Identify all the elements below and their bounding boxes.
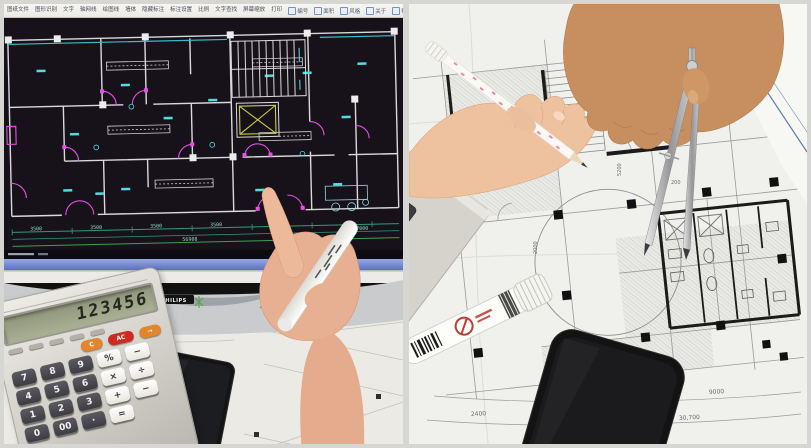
key-percent: % <box>96 348 123 368</box>
key-8: 8 <box>39 361 66 381</box>
key-plus: + <box>104 385 131 405</box>
dim-right-label: 7000 <box>356 226 368 232</box>
key-minus: − <box>124 342 151 362</box>
toolbar-item: 面积 <box>311 7 337 15</box>
dim-label: 3500 <box>30 226 42 232</box>
menu-item: 绘图线 <box>100 4 123 17</box>
dim-2000: 2000 <box>533 241 539 254</box>
clear-key: C <box>80 337 104 353</box>
collage-frame: 图纸文件 图形识别 文字 轴网线 绘图线 墙体 隐藏标注 标注设置 比例 文字查… <box>0 0 811 448</box>
menu-item: 文字查找 <box>212 4 240 17</box>
blueprint-scene: 9000 30,700 2400 200 5200 2000 <box>409 4 807 444</box>
ac-key: AC <box>107 330 135 347</box>
key-6: 6 <box>72 373 99 393</box>
photo-monitor-cad: 图纸文件 图形识别 文字 轴网线 绘图线 墙体 隐藏标注 标注设置 比例 文字查… <box>4 4 403 444</box>
dim-2400: 2400 <box>471 410 487 418</box>
key-00: 00 <box>52 417 79 437</box>
toolbar-item: 帮助 <box>389 7 403 15</box>
toolbar-item: 关于 <box>363 7 389 15</box>
dim-label: 3500 <box>210 222 222 228</box>
help-tool-icon <box>392 7 400 15</box>
key-9: 9 <box>67 355 94 375</box>
key-2: 2 <box>48 398 75 418</box>
area-tool-icon <box>314 7 322 15</box>
dim-label: 3500 <box>150 223 162 229</box>
key-5: 5 <box>44 380 71 400</box>
menu-item: 打印 <box>268 4 285 17</box>
key-equals: = <box>109 404 136 424</box>
key-7: 7 <box>11 368 38 388</box>
menu-item: 图形识别 <box>32 4 60 17</box>
menu-item: 图纸文件 <box>4 4 32 17</box>
menu-item: 墙体 <box>122 4 139 17</box>
dim-5200: 5200 <box>617 163 623 176</box>
key-4: 4 <box>15 386 42 406</box>
style-tool-icon <box>340 7 348 15</box>
number-tool-icon <box>288 7 296 15</box>
key-3: 3 <box>76 392 103 412</box>
key-multiply: × <box>100 367 127 387</box>
cad-menubar: 图纸文件 图形识别 文字 轴网线 绘图线 墙体 隐藏标注 标注设置 比例 文字查… <box>4 4 403 18</box>
menu-item: 屏幕缩放 <box>240 4 268 17</box>
dim-total-label: 56908 <box>182 237 197 243</box>
toolbar-item: 风格 <box>337 7 363 15</box>
key-dot: · <box>80 410 107 430</box>
menu-item: 轴网线 <box>77 4 100 17</box>
menu-item: 文字 <box>60 4 77 17</box>
key-minus2: − <box>133 379 160 399</box>
dim-label: 3500 <box>90 225 102 231</box>
photo-blueprint-hands: 9000 30,700 2400 200 5200 2000 <box>409 4 807 444</box>
key-1: 1 <box>20 405 47 425</box>
menu-item: 标注设置 <box>167 4 195 17</box>
menu-item: 比例 <box>195 4 212 17</box>
menu-item: 隐藏标注 <box>139 4 167 17</box>
toolbar-item: 编号 <box>285 7 311 15</box>
about-tool-icon <box>366 7 374 15</box>
dim-9000: 9000 <box>709 388 725 396</box>
key-0: 0 <box>24 423 51 443</box>
dim-30700: 30,700 <box>679 414 701 422</box>
dim-200: 200 <box>671 180 681 186</box>
backspace-key: → <box>138 323 162 339</box>
key-divide: ÷ <box>128 360 155 380</box>
